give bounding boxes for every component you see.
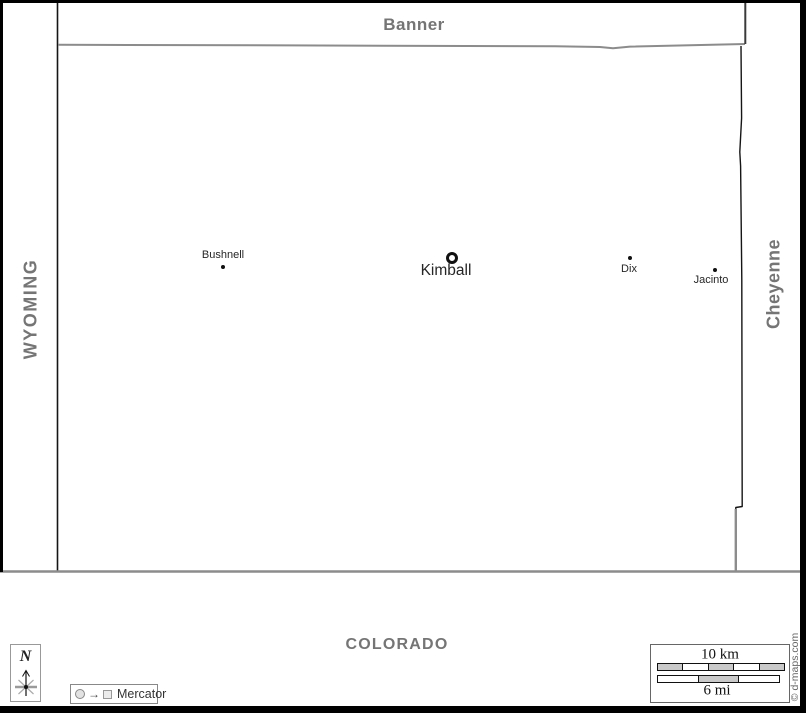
frame-left — [0, 0, 3, 572]
scale-km-segment — [683, 664, 708, 670]
town-dot-bushnell — [221, 265, 225, 269]
scale-mi-segment — [739, 676, 779, 682]
scale-mi-segment — [658, 676, 699, 682]
county-boundary-lines — [0, 0, 806, 713]
compass-box: N — [10, 644, 41, 702]
projection-legend: → Mercator — [70, 684, 158, 704]
scale-box: 10 km 6 mi — [650, 644, 790, 703]
globe-circle-icon — [75, 689, 85, 699]
scale-km-segment — [760, 664, 784, 670]
neighbor-label-colorado: COLORADO — [346, 636, 449, 654]
projection-name: Mercator — [117, 687, 166, 701]
compass-rose-icon — [13, 665, 39, 699]
town-label-kimball: Kimball — [421, 262, 472, 280]
scale-mi-segment — [699, 676, 740, 682]
scale-bar-km — [657, 663, 785, 671]
neighbor-label-cheyenne: Cheyenne — [764, 239, 785, 329]
scale-km-segment — [709, 664, 734, 670]
scale-km-label: 10 km — [701, 647, 739, 664]
town-label-bushnell: Bushnell — [202, 249, 244, 261]
boundary-east — [736, 46, 742, 511]
scale-km-segment — [658, 664, 683, 670]
neighbor-label-banner: Banner — [383, 15, 445, 35]
town-label-jacinto: Jacinto — [694, 274, 729, 286]
boundary-north — [58, 44, 745, 48]
scale-km-segment — [734, 664, 759, 670]
map-credit: © d-maps.com — [789, 633, 801, 701]
town-label-dix: Dix — [621, 263, 637, 275]
compass-north-label: N — [20, 649, 32, 665]
arrow-right-icon: → — [88, 688, 100, 700]
frame-right — [800, 0, 806, 713]
flat-map-square-icon — [103, 690, 112, 699]
county-map: Banner WYOMING Cheyenne COLORADO Bushnel… — [0, 0, 806, 713]
neighbor-label-wyoming: WYOMING — [21, 259, 42, 360]
town-dot-dix — [628, 256, 632, 260]
frame-top — [0, 0, 806, 3]
scale-mi-label: 6 mi — [703, 683, 730, 700]
frame-bottom — [0, 706, 806, 713]
town-dot-jacinto — [713, 268, 717, 272]
